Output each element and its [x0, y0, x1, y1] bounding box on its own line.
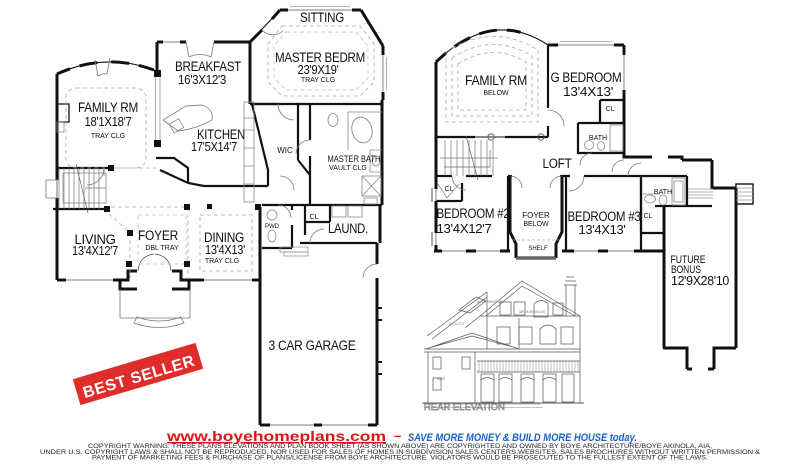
svg-text:BREAKFAST: BREAKFAST	[175, 59, 241, 74]
svg-text:BEDROOM #2: BEDROOM #2	[437, 206, 510, 221]
svg-text:FAMILY RM: FAMILY RM	[78, 100, 138, 115]
svg-text:ARCH SHINGLES: ARCH SHINGLES	[519, 310, 545, 314]
svg-text:18'1X18'7: 18'1X18'7	[85, 115, 132, 129]
svg-text:www.boyehomeplans.com: www.boyehomeplans.com	[166, 428, 386, 444]
svg-text:13'4X13': 13'4X13'	[563, 85, 613, 99]
svg-text:SHELF: SHELF	[528, 246, 548, 252]
svg-text:FOYER: FOYER	[522, 211, 550, 220]
svg-text:BEDROOM #3: BEDROOM #3	[568, 209, 641, 224]
svg-text:16'3X12'3: 16'3X12'3	[178, 73, 226, 87]
svg-text:BATH: BATH	[654, 189, 672, 196]
svg-text:CL: CL	[606, 106, 615, 113]
svg-text:STUCCO: STUCCO	[449, 322, 464, 326]
svg-text:G BEDROOM: G BEDROOM	[551, 70, 622, 85]
svg-text:TRAY CLG: TRAY CLG	[205, 258, 239, 265]
svg-text:LAUND.: LAUND.	[328, 221, 368, 236]
svg-text:TRAY CLG: TRAY CLG	[91, 133, 125, 140]
svg-text:CL: CL	[644, 213, 653, 220]
svg-text:13'4X12'7: 13'4X12'7	[72, 244, 118, 258]
svg-text:SITTING: SITTING	[300, 10, 344, 25]
svg-text:BSMT: BSMT	[437, 377, 446, 381]
svg-text:CL: CL	[445, 186, 454, 193]
svg-text:12'9X28'10: 12'9X28'10	[671, 274, 729, 288]
svg-text:BATH: BATH	[589, 135, 607, 142]
svg-text:17'5X14'7: 17'5X14'7	[191, 140, 237, 154]
svg-text:13'4X13': 13'4X13'	[205, 243, 245, 257]
svg-text:FAMILY RM: FAMILY RM	[465, 73, 527, 88]
svg-text:BELOW: BELOW	[523, 221, 549, 228]
svg-text:MASTER BATH: MASTER BATH	[328, 154, 381, 165]
svg-text:TRAY CLG: TRAY CLG	[301, 77, 335, 84]
svg-text:–: –	[394, 428, 401, 443]
svg-text:DBL TRAY: DBL TRAY	[145, 245, 179, 252]
svg-text:3 CAR GARAGE: 3 CAR GARAGE	[269, 338, 356, 353]
svg-text:13'4X12'7: 13'4X12'7	[437, 222, 492, 236]
svg-text:13'4X13': 13'4X13'	[579, 223, 626, 237]
svg-text:ARCH SHINGLES: ARCH SHINGLES	[477, 300, 503, 304]
svg-text:VAULT CLG: VAULT CLG	[329, 165, 367, 172]
svg-text:23'9X19': 23'9X19'	[298, 63, 339, 77]
svg-text:LOFT: LOFT	[543, 156, 572, 171]
svg-text:PAYMENT OF MARKETING FEES & PU: PAYMENT OF MARKETING FEES & PURCHASE OF …	[92, 455, 708, 462]
svg-text:FOYER: FOYER	[138, 228, 178, 243]
svg-text:CL: CL	[310, 214, 319, 221]
svg-text:PWD: PWD	[265, 224, 280, 230]
svg-text:BELOW: BELOW	[483, 90, 509, 97]
svg-text:WIC: WIC	[277, 146, 293, 155]
